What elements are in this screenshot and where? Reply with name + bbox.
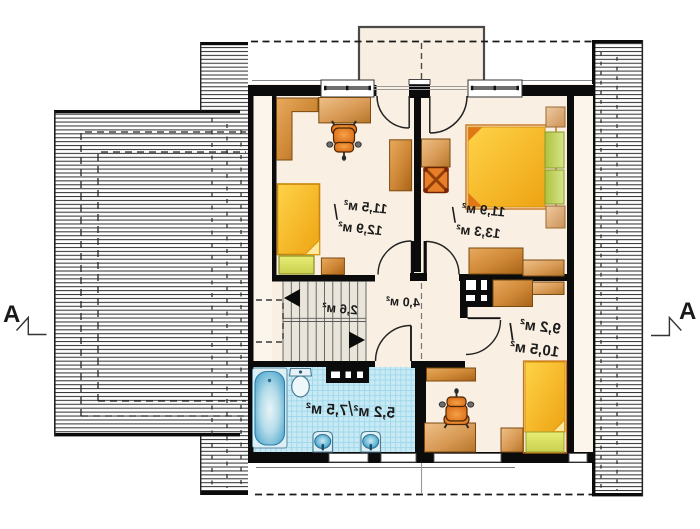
svg-text:A: A [679, 298, 696, 325]
svg-text:A: A [3, 301, 20, 328]
svg-text:4,0 м²: 4,0 м² [385, 294, 420, 310]
svg-text:2,6 м²: 2,6 м² [321, 299, 358, 317]
